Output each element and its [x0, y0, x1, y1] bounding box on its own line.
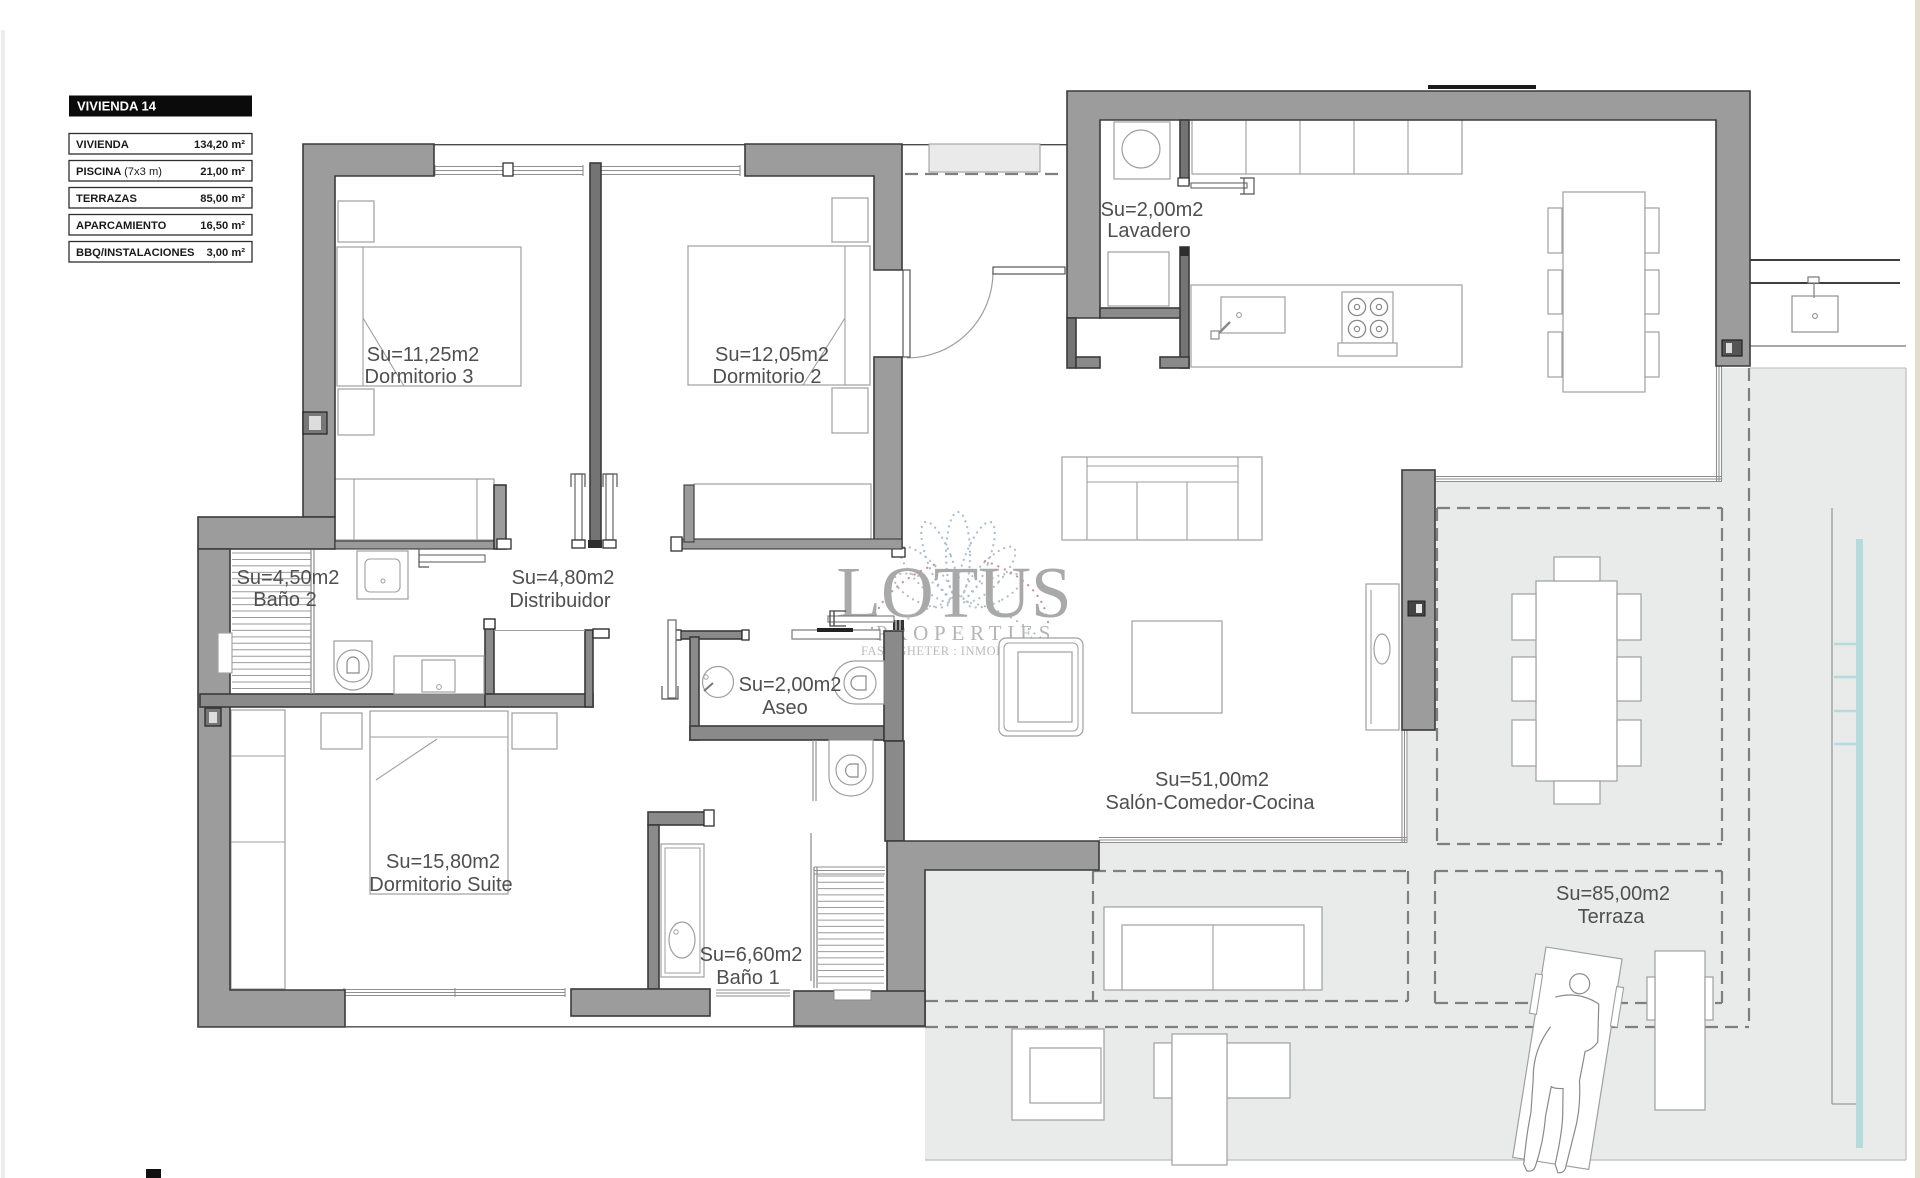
svg-text:21,00 m²: 21,00 m² — [200, 166, 245, 178]
svg-text:3,00 m²: 3,00 m² — [206, 247, 245, 259]
svg-text:Dormitorio Suite: Dormitorio Suite — [369, 874, 512, 896]
svg-text:Su=2,00m2: Su=2,00m2 — [739, 674, 842, 696]
svg-text:Su=2,00m2: Su=2,00m2 — [1101, 199, 1204, 221]
svg-text:Su=11,25m2: Su=11,25m2 — [367, 344, 480, 366]
svg-text:85,00 m²: 85,00 m² — [200, 193, 245, 205]
svg-text:TERRAZAS: TERRAZAS — [76, 193, 137, 205]
svg-text:Dormitorio 2: Dormitorio 2 — [713, 366, 822, 388]
svg-text:Su=51,00m2: Su=51,00m2 — [1155, 769, 1269, 791]
svg-text:PISCINA (7x3 m): PISCINA (7x3 m) — [76, 166, 162, 178]
svg-text:Su=12,05m2: Su=12,05m2 — [715, 344, 829, 366]
svg-text:APARCAMIENTO: APARCAMIENTO — [76, 220, 167, 232]
svg-text:Su=6,60m2: Su=6,60m2 — [700, 944, 803, 966]
svg-text:Dormitorio 3: Dormitorio 3 — [365, 366, 474, 388]
svg-text:134,20 m²: 134,20 m² — [194, 139, 245, 151]
svg-text:Baño 1: Baño 1 — [716, 967, 779, 989]
svg-text:BBQ/INSTALACIONES: BBQ/INSTALACIONES — [76, 247, 195, 259]
svg-text:Su=15,80m2: Su=15,80m2 — [386, 851, 500, 873]
svg-text:Lavadero: Lavadero — [1107, 220, 1190, 242]
svg-text:16,50 m²: 16,50 m² — [200, 220, 245, 232]
svg-text:Salón-Comedor-Cocina: Salón-Comedor-Cocina — [1106, 792, 1316, 814]
svg-text:Terraza: Terraza — [1578, 906, 1646, 928]
svg-text:Su=85,00m2: Su=85,00m2 — [1556, 883, 1670, 905]
svg-text:Su=4,80m2: Su=4,80m2 — [512, 567, 615, 589]
svg-text:VIVIENDA 14: VIVIENDA 14 — [77, 99, 157, 114]
svg-text:VIVIENDA: VIVIENDA — [76, 139, 129, 151]
svg-text:Aseo: Aseo — [762, 697, 808, 719]
svg-text:Distribuidor: Distribuidor — [509, 590, 610, 612]
svg-text:Su=4,50m2: Su=4,50m2 — [237, 567, 340, 589]
svg-text:Baño 2: Baño 2 — [253, 589, 316, 611]
